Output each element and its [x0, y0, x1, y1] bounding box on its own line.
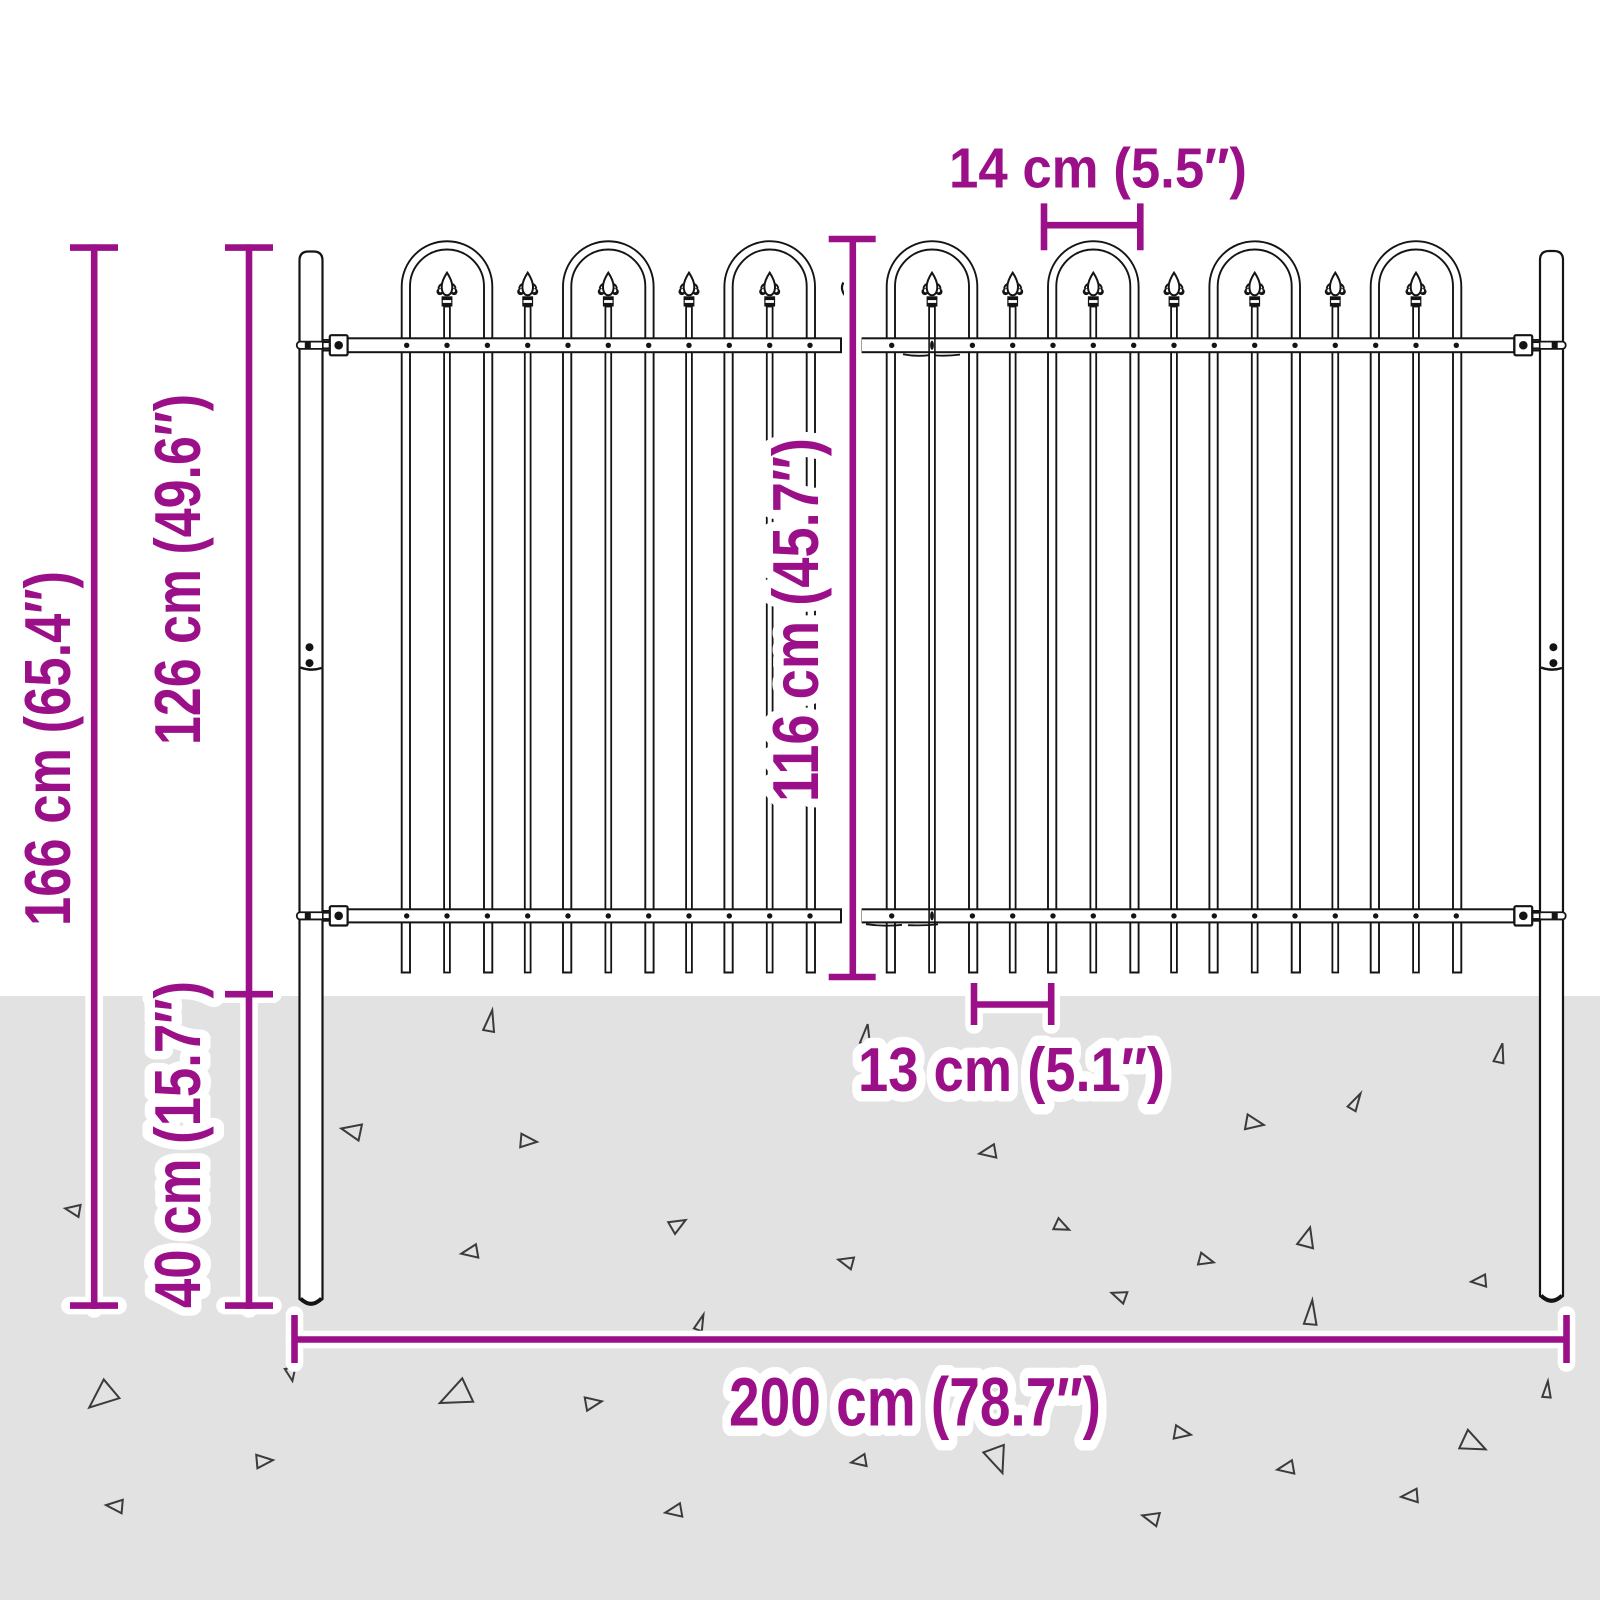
- svg-text:14 cm (5.5″): 14 cm (5.5″): [949, 137, 1247, 201]
- svg-text:116 cm (45.7″): 116 cm (45.7″): [760, 438, 832, 802]
- svg-text:200 cm (78.7″): 200 cm (78.7″): [729, 1364, 1101, 1441]
- svg-text:13 cm (5.1″): 13 cm (5.1″): [858, 1035, 1165, 1105]
- svg-text:40 cm (15.7″): 40 cm (15.7″): [142, 981, 214, 1308]
- svg-text:166 cm (65.4″): 166 cm (65.4″): [12, 571, 84, 926]
- svg-text:126 cm (49.6″): 126 cm (49.6″): [142, 394, 214, 745]
